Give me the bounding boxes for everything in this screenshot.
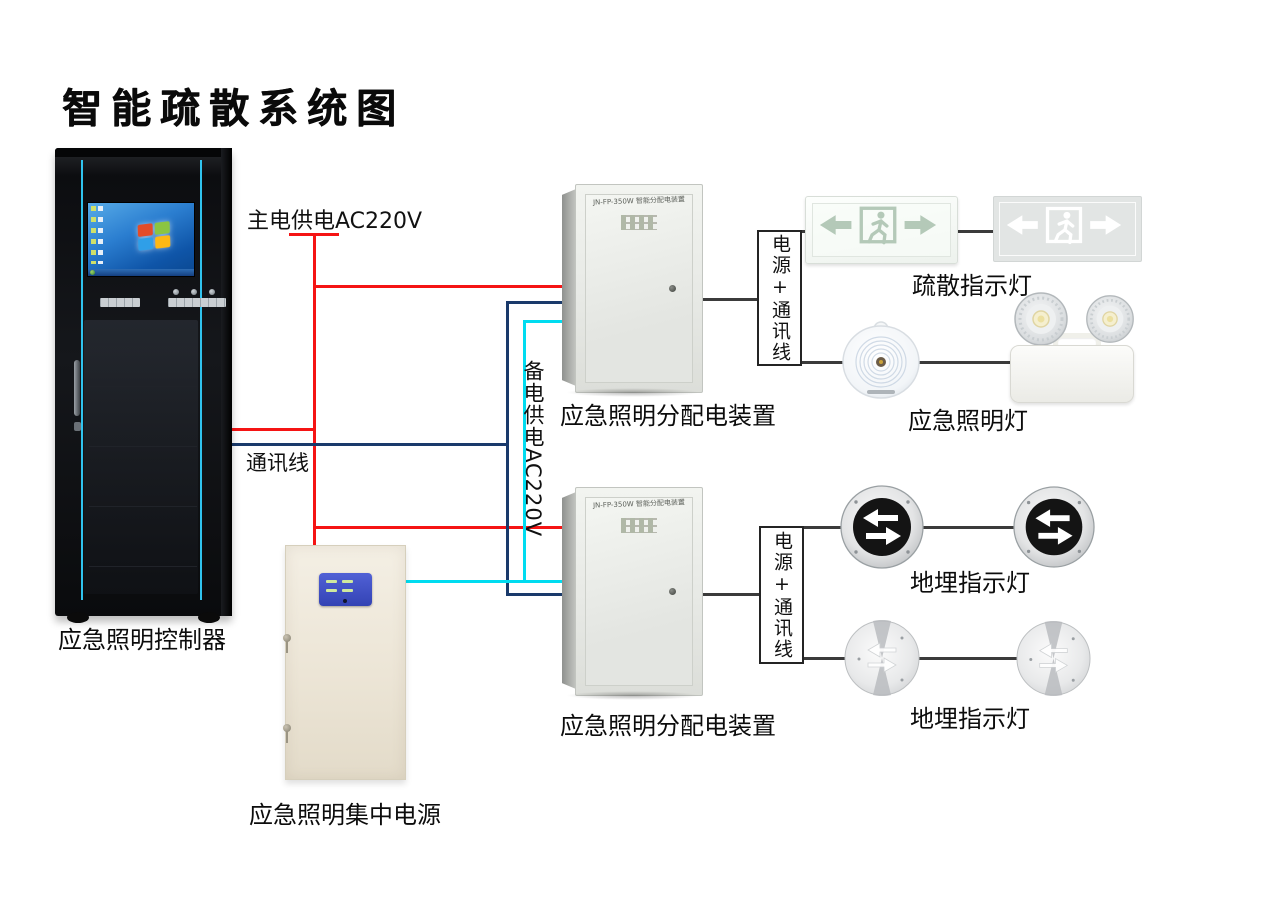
cabinet-top-cap bbox=[55, 148, 232, 157]
box-indicator-grid bbox=[621, 518, 657, 533]
comm-wire-label: 通讯线 bbox=[246, 447, 309, 477]
panel-button bbox=[343, 599, 347, 603]
led-display-segment bbox=[342, 589, 353, 592]
ground-silver-light bbox=[844, 620, 920, 696]
main-power-wire-label: 主电供电AC220V bbox=[247, 203, 422, 235]
controller-touchscreen bbox=[87, 202, 195, 277]
cabinet-accent-strip-right bbox=[200, 160, 202, 600]
box-door-knob bbox=[669, 285, 676, 292]
led-display-segment bbox=[326, 580, 337, 583]
page-title: 智能疏散系统图 bbox=[62, 76, 405, 134]
exit-running-man-icon bbox=[1001, 203, 1127, 247]
wire-main-power-to-upper-box bbox=[313, 285, 568, 288]
box-side-panel bbox=[562, 492, 576, 689]
wire-lower-box-to-label bbox=[699, 593, 761, 596]
ground-silver-light bbox=[1016, 621, 1091, 696]
central-power-label: 应急照明集中电源 bbox=[235, 795, 455, 830]
box-front: JN-FP-350W 智能分配电装置 bbox=[575, 184, 703, 393]
wire-main-power-to-controller bbox=[225, 428, 316, 431]
windows-logo-icon bbox=[138, 221, 171, 251]
exit-running-man-icon bbox=[814, 202, 942, 248]
box-front: JN-FP-350W 智能分配电装置 bbox=[575, 487, 703, 696]
power-comm-label-lower: 电源+通讯线 bbox=[772, 531, 791, 660]
evacuation-system-diagram: 智能疏散系统图 主电供电AC220V 通讯线 备电供电AC220V 电源+通讯线… bbox=[0, 0, 1264, 901]
power-control-panel bbox=[319, 573, 372, 606]
box-indicator-grid bbox=[621, 215, 657, 230]
led-display-segment bbox=[342, 580, 353, 583]
cabinet-lock-handle bbox=[283, 634, 291, 642]
wire-comm-to-lower-box bbox=[506, 593, 568, 596]
twin-lamp-head-right bbox=[1085, 294, 1135, 344]
cabinet-button-strip-right bbox=[168, 298, 226, 307]
wire-comm-from-controller bbox=[225, 443, 509, 446]
power-comm-label-box-upper: 电源+通讯线 bbox=[757, 230, 802, 366]
exit-sign-group-label: 疏散指示灯 bbox=[862, 266, 1082, 301]
distribution-box-lower: JN-FP-350W 智能分配电装置 bbox=[562, 487, 702, 695]
start-orb-icon bbox=[90, 270, 95, 275]
led-display-segment bbox=[326, 589, 337, 592]
ground-lights-row1-label: 地埋指示灯 bbox=[860, 563, 1080, 598]
wire-upper-box-to-label bbox=[699, 298, 759, 301]
cabinet-side-panel bbox=[221, 148, 232, 616]
cabinet-shelf-line bbox=[89, 386, 197, 387]
cabinet-round-button bbox=[191, 289, 197, 295]
cabinet-door-lock bbox=[74, 422, 81, 431]
cabinet-round-button bbox=[173, 289, 179, 295]
controller-label: 应急照明控制器 bbox=[32, 620, 252, 655]
cabinet-door-handle bbox=[74, 360, 80, 416]
cabinet-button-strip-left bbox=[100, 298, 140, 307]
lamp-brand-band bbox=[867, 390, 895, 394]
desktop-icons-column bbox=[98, 206, 103, 264]
backup-power-wire-label: 备电供电AC220V bbox=[518, 360, 548, 537]
ground-arrow-light bbox=[1013, 486, 1095, 568]
ground-arrow-light bbox=[840, 485, 924, 569]
round-ceiling-emergency-lamp bbox=[841, 320, 921, 400]
cabinet-shelf-line bbox=[89, 506, 197, 507]
power-comm-label-box-lower: 电源+通讯线 bbox=[759, 526, 804, 664]
exit-sign-gray bbox=[993, 196, 1142, 262]
power-comm-label-upper: 电源+通讯线 bbox=[770, 234, 789, 363]
twin-head-emergency-lamp-body bbox=[1010, 345, 1134, 403]
wire-backup-from-central-power bbox=[402, 580, 568, 583]
box-door-knob bbox=[669, 588, 676, 595]
distribution-lower-label: 应急照明分配电装置 bbox=[558, 706, 778, 741]
screen-taskbar bbox=[88, 269, 194, 276]
cabinet-round-button bbox=[209, 289, 215, 295]
wire-comm-to-upper-box bbox=[506, 301, 568, 304]
emergency-lighting-controller-cabinet bbox=[55, 148, 232, 616]
wire-comm-trunk bbox=[506, 301, 509, 596]
distribution-upper-label: 应急照明分配电装置 bbox=[558, 396, 778, 431]
box-side-panel bbox=[562, 189, 576, 386]
central-power-cabinet bbox=[285, 545, 406, 780]
cabinet-shelf-line bbox=[89, 566, 197, 567]
desktop-icons-column bbox=[91, 206, 96, 264]
box-shadow bbox=[566, 691, 700, 700]
ground-lights-row2-label: 地埋指示灯 bbox=[860, 699, 1080, 734]
distribution-box-upper: JN-FP-350W 智能分配电装置 bbox=[562, 184, 702, 392]
cabinet-shelf-line bbox=[89, 446, 197, 447]
cabinet-accent-strip-left bbox=[81, 160, 83, 600]
emergency-lamp-group-label: 应急照明灯 bbox=[858, 401, 1078, 436]
exit-sign-frosted bbox=[805, 196, 958, 264]
wire-main-power-trunk bbox=[313, 233, 316, 547]
cabinet-door-glass bbox=[84, 320, 198, 594]
cabinet-lock-handle bbox=[283, 724, 291, 732]
